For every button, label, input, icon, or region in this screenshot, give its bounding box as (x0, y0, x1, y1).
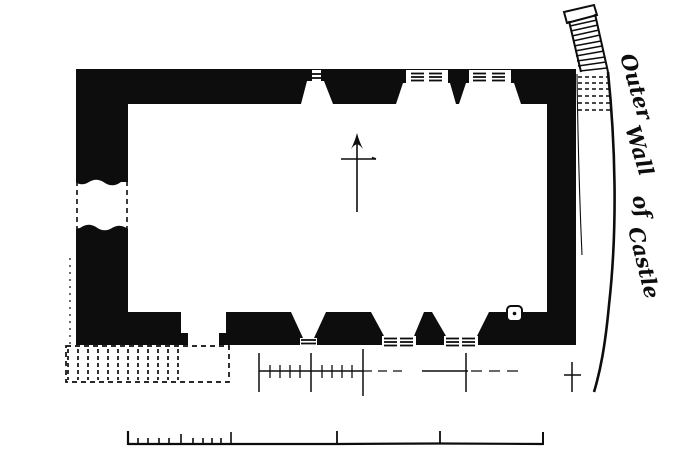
north-arrow-icon (341, 133, 376, 212)
annotation-word-wall: Wall (620, 122, 659, 178)
annotation-outer-wall-of-castle: Outer Wall of Castle (615, 50, 665, 301)
castle-wall-dashed-section (578, 77, 611, 110)
plan-sheet: Outer Wall of Castle (0, 0, 694, 460)
floor-plan-drawing: Outer Wall of Castle (0, 0, 694, 460)
chapel-walls (76, 69, 576, 345)
aumbry-recess (507, 306, 522, 321)
dimension-line (259, 349, 581, 396)
annotation-word-outer: Outer (615, 50, 658, 124)
annotation-word-castle: Castle (623, 224, 665, 301)
castle-wall-hatching (570, 20, 607, 71)
ruined-wall-gap (74, 180, 128, 231)
annotation-word-of: of (627, 192, 658, 224)
scale-bar (128, 431, 543, 445)
dimension-cross-mark (564, 362, 581, 392)
